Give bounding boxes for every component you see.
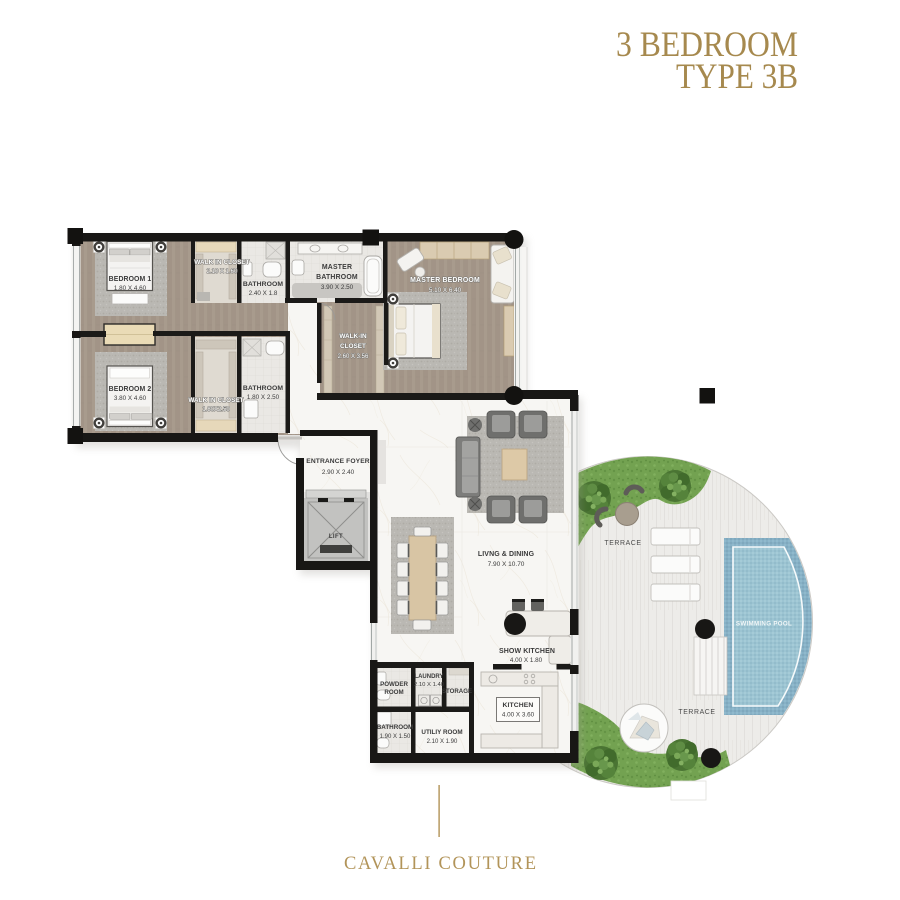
svg-text:MASTER: MASTER [322, 264, 352, 271]
svg-text:1.90 X 1.50: 1.90 X 1.50 [380, 734, 411, 740]
svg-text:4.00 X 3.60: 4.00 X 3.60 [502, 712, 535, 719]
svg-text:2.40 X 1.8: 2.40 X 1.8 [249, 290, 278, 297]
svg-text:2.90 X 2.40: 2.90 X 2.40 [322, 469, 355, 476]
svg-text:WALK IN CLOSET: WALK IN CLOSET [188, 397, 243, 404]
svg-text:STORAGE: STORAGE [442, 688, 472, 695]
svg-text:1.80X2.50: 1.80X2.50 [202, 407, 230, 413]
svg-text:1.80 X 4.60: 1.80 X 4.60 [114, 285, 147, 292]
svg-text:2.10 X 1.90: 2.10 X 1.90 [427, 739, 458, 745]
svg-text:3.90 X 2.50: 3.90 X 2.50 [321, 284, 354, 291]
svg-text:POWDER: POWDER [380, 681, 408, 688]
svg-text:TERRACE: TERRACE [604, 540, 641, 547]
svg-text:LIVNG & DINING: LIVNG & DINING [478, 551, 535, 558]
svg-text:TYPE 3B: TYPE 3B [676, 56, 798, 96]
svg-text:KITCHEN: KITCHEN [503, 702, 534, 709]
svg-text:4.00 X 1.80: 4.00 X 1.80 [510, 657, 543, 664]
svg-text:1.80 X 2.50: 1.80 X 2.50 [247, 394, 280, 401]
svg-text:LAUNDRY: LAUNDRY [414, 674, 443, 680]
svg-text:SHOW KITCHEN: SHOW KITCHEN [499, 648, 555, 655]
svg-text:SWIMMING POOL: SWIMMING POOL [736, 621, 792, 628]
svg-text:LIFT: LIFT [329, 534, 343, 540]
svg-text:BATHROOM: BATHROOM [316, 274, 358, 281]
svg-text:2.10 X 1.60: 2.10 X 1.60 [207, 269, 238, 275]
svg-text:5.10 X 6.40: 5.10 X 6.40 [429, 287, 462, 294]
svg-text:2.60 X 3.56: 2.60 X 3.56 [338, 354, 369, 360]
svg-text:CLOSET: CLOSET [340, 343, 366, 350]
svg-text:BATHROOM: BATHROOM [243, 281, 284, 288]
svg-text:ENTRANCE FOYER: ENTRANCE FOYER [306, 458, 370, 465]
svg-text:BATHROOM: BATHROOM [243, 385, 284, 392]
svg-text:BEDROOM 2: BEDROOM 2 [109, 386, 152, 393]
svg-text:WALK IN CLOSET: WALK IN CLOSET [194, 259, 249, 266]
svg-text:ROOM: ROOM [384, 689, 403, 696]
svg-text:BEDROOM 1: BEDROOM 1 [109, 276, 152, 283]
svg-text:3.80 X 4.60: 3.80 X 4.60 [114, 395, 147, 402]
svg-text:BATHROOM: BATHROOM [377, 724, 414, 731]
svg-text:TERRACE: TERRACE [678, 709, 715, 716]
svg-text:WALK-IN: WALK-IN [339, 333, 367, 340]
svg-text:7.90 X 10.70: 7.90 X 10.70 [488, 561, 525, 568]
svg-text:MASTER BEDROOM: MASTER BEDROOM [410, 277, 480, 284]
svg-text:CAVALLI COUTURE: CAVALLI COUTURE [344, 854, 536, 874]
svg-text:2.10 X 1.40: 2.10 X 1.40 [414, 682, 445, 688]
svg-text:UTILIY ROOM: UTILIY ROOM [421, 729, 462, 736]
